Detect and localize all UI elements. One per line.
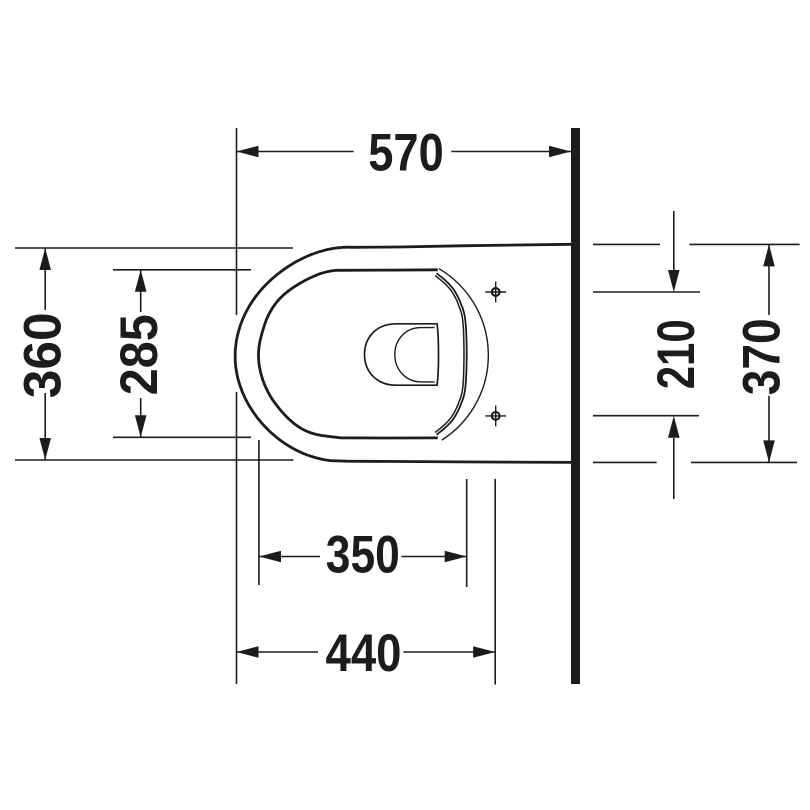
svg-text:210: 210 [647,319,706,389]
svg-text:360: 360 [14,312,73,398]
svg-text:440: 440 [326,624,402,683]
svg-text:370: 370 [733,318,792,395]
svg-text:570: 570 [368,123,444,182]
svg-text:350: 350 [326,525,400,584]
svg-text:285: 285 [110,314,169,395]
